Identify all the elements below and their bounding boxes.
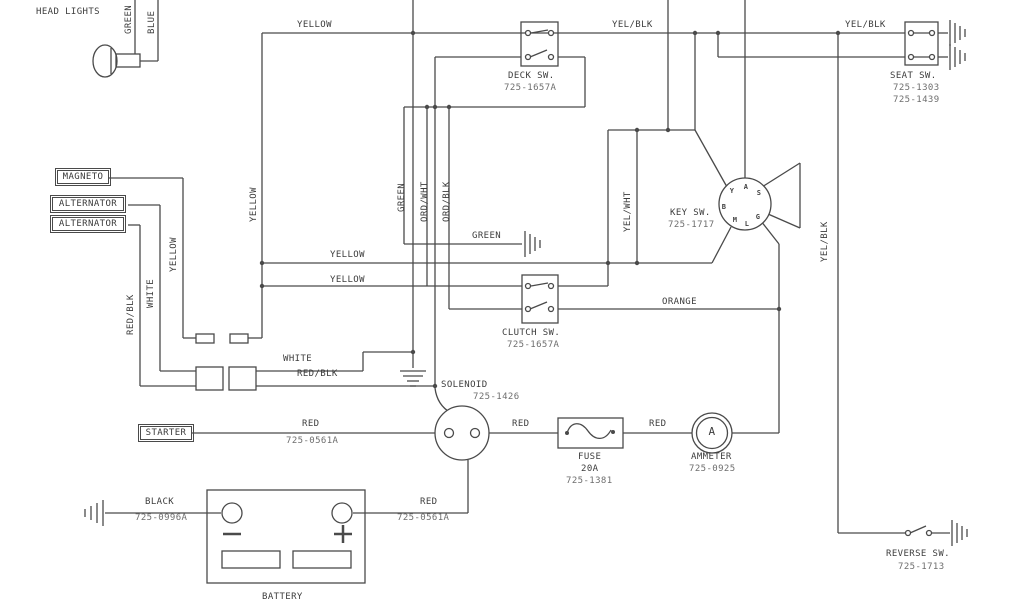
wire-orange: ORANGE bbox=[662, 297, 697, 307]
key-terminal-l: L bbox=[745, 219, 750, 229]
clutch-switch-label: CLUTCH SW. bbox=[502, 328, 560, 338]
wire-green-ground: GREEN bbox=[472, 231, 501, 241]
wire-white-v160: WHITE bbox=[146, 279, 156, 308]
fuse-rating: 20A bbox=[581, 464, 598, 474]
label-layer: HEAD LIGHTSGREENBLUEYELLOWYEL/BLKYEL/BLK… bbox=[0, 0, 1024, 600]
wire-redblk-v140: RED/BLK bbox=[126, 294, 136, 335]
key-switch-label: KEY SW. bbox=[670, 208, 711, 218]
battery-label: BATTERY bbox=[262, 592, 303, 600]
ammeter-symbol: A bbox=[708, 427, 715, 437]
wire-yellow-v183: YELLOW bbox=[169, 237, 179, 272]
wire-ordblk-v449: ORD/BLK bbox=[442, 181, 452, 222]
reverse-switch-part: 725-1713 bbox=[898, 562, 945, 572]
reverse-switch-label: REVERSE SW. bbox=[886, 549, 950, 559]
battery-cable-part: 725-0561A bbox=[397, 513, 449, 523]
wire-yelblk-right: YEL/BLK bbox=[820, 221, 830, 262]
seat-switch-part-1: 725-1303 bbox=[893, 83, 940, 93]
wire-green-headlight: GREEN bbox=[124, 5, 134, 34]
ammeter-part: 725-0925 bbox=[689, 464, 736, 474]
wire-red-battery: RED bbox=[420, 497, 437, 507]
key-terminal-s: S bbox=[757, 188, 762, 198]
wire-ordwht-v427: ORD/WHT bbox=[420, 181, 430, 222]
deck-switch-label: DECK SW. bbox=[508, 71, 555, 81]
deck-switch-part: 725-1657A bbox=[504, 83, 556, 93]
fuse-part: 725-1381 bbox=[566, 476, 613, 486]
fuse-label: FUSE bbox=[578, 452, 601, 462]
ammeter-label: AMMETER bbox=[691, 452, 732, 462]
wire-red-starter: RED bbox=[302, 419, 319, 429]
key-terminal-m: M bbox=[733, 215, 738, 225]
alternator-label-1: ALTERNATOR bbox=[50, 195, 126, 213]
wiring-diagram: HEAD LIGHTSGREENBLUEYELLOWYEL/BLKYEL/BLK… bbox=[0, 0, 1024, 600]
starter-label: STARTER bbox=[138, 424, 194, 442]
key-terminal-a: A bbox=[744, 182, 749, 192]
wire-yelblk-top-1: YEL/BLK bbox=[612, 20, 653, 30]
clutch-switch-part: 725-1657A bbox=[507, 340, 559, 350]
wire-red-ammeter: RED bbox=[649, 419, 666, 429]
head-lights-label: HEAD LIGHTS bbox=[36, 7, 100, 17]
solenoid-label: SOLENOID bbox=[441, 380, 488, 390]
wire-yellow-h263: YELLOW bbox=[330, 250, 365, 260]
wire-blue-headlight: BLUE bbox=[147, 11, 157, 34]
alternator-label-2: ALTERNATOR bbox=[50, 215, 126, 233]
wire-white-h: WHITE bbox=[283, 354, 312, 364]
starter-cable-part: 725-0561A bbox=[286, 436, 338, 446]
wire-yellow-v262: YELLOW bbox=[249, 187, 259, 222]
key-switch-part: 725-1717 bbox=[668, 220, 715, 230]
seat-switch-label: SEAT SW. bbox=[890, 71, 937, 81]
magneto-label: MAGNETO bbox=[55, 168, 111, 186]
wire-yelblk-top-2: YEL/BLK bbox=[845, 20, 886, 30]
wire-green-v404: GREEN bbox=[397, 183, 407, 212]
key-terminal-b: B bbox=[722, 202, 727, 212]
wire-yellow-h286: YELLOW bbox=[330, 275, 365, 285]
wire-yellow-top: YELLOW bbox=[297, 20, 332, 30]
seat-switch-part-2: 725-1439 bbox=[893, 95, 940, 105]
battery-ground-part: 725-0996A bbox=[135, 513, 187, 523]
wire-redblk-h: RED/BLK bbox=[297, 369, 338, 379]
wire-yelwht-v637: YEL/WHT bbox=[623, 191, 633, 232]
wire-red-fuse: RED bbox=[512, 419, 529, 429]
key-terminal-g: G bbox=[756, 212, 761, 222]
solenoid-part: 725-1426 bbox=[473, 392, 520, 402]
wire-black: BLACK bbox=[145, 497, 174, 507]
key-terminal-y: Y bbox=[730, 186, 735, 196]
